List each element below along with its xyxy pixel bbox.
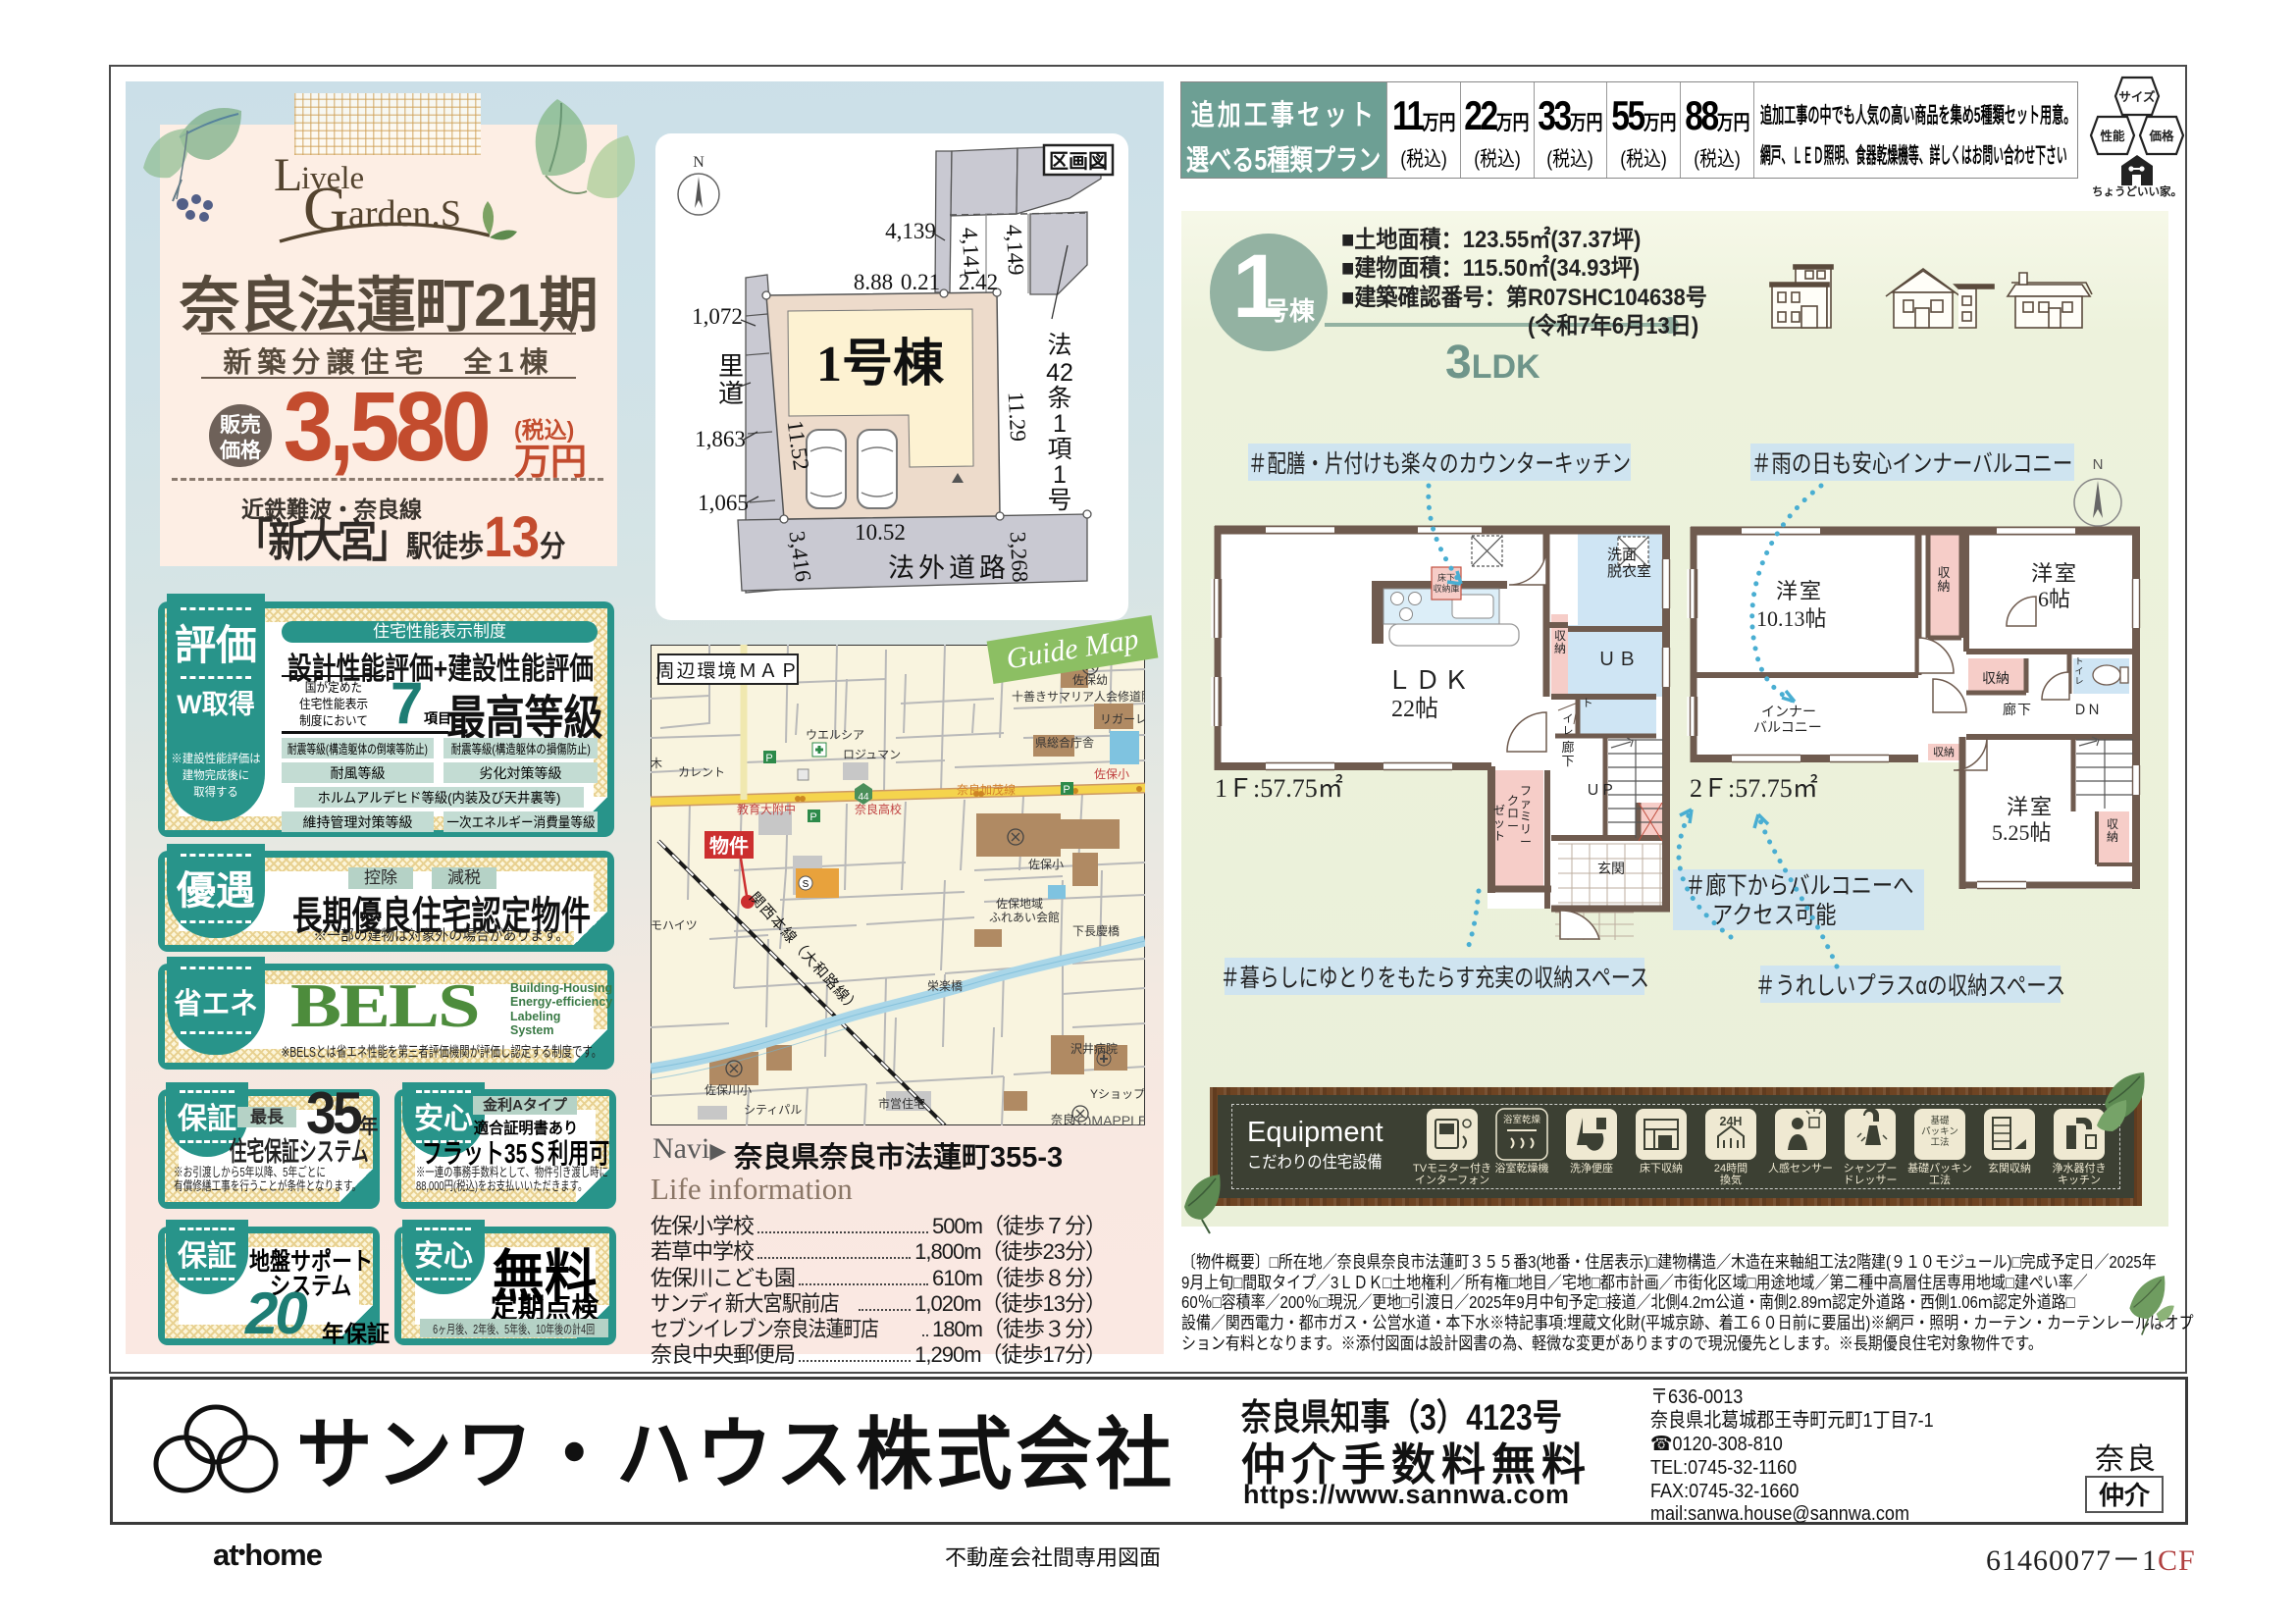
- svg-text:佐保小: 佐保小: [1094, 767, 1129, 781]
- svg-text:区画図: 区画図: [1049, 151, 1108, 173]
- svg-text:里: 里: [718, 351, 744, 381]
- svg-text:P: P: [765, 753, 772, 764]
- svg-text:項: 項: [1047, 436, 1071, 463]
- svg-text:1: 1: [1053, 410, 1067, 438]
- svg-text:条: 条: [1047, 385, 1071, 412]
- svg-text:性能: 性能: [2099, 129, 2125, 143]
- svg-text:インターフォン: インターフォン: [1415, 1174, 1489, 1186]
- svg-text:8.88: 8.88: [854, 270, 893, 294]
- svg-text:44: 44: [858, 792, 869, 803]
- svg-text:パッキン: パッキン: [1921, 1126, 1958, 1137]
- svg-text:法外道路: 法外道路: [888, 553, 1010, 583]
- svg-text:浴室乾燥: 浴室乾燥: [1503, 1114, 1541, 1125]
- svg-text:奈良加茂線: 奈良加茂線: [957, 782, 1016, 797]
- svg-text:浄水器付き: 浄水器付き: [2053, 1161, 2107, 1175]
- svg-text:1,072: 1,072: [692, 304, 743, 329]
- svg-text:浴室乾燥機: 浴室乾燥機: [1495, 1161, 1549, 1175]
- svg-text:下長慶橋: 下長慶橋: [1072, 924, 1120, 938]
- svg-text:工法: 工法: [1930, 1136, 1949, 1148]
- svg-text:Yショップ: Yショップ: [1090, 1087, 1145, 1101]
- svg-text:N: N: [693, 154, 704, 171]
- svg-text:教育大附中: 教育大附中: [737, 802, 796, 816]
- svg-text:シャンプー: シャンプー: [1844, 1162, 1898, 1175]
- svg-text:法: 法: [1047, 332, 1071, 359]
- svg-text:サイズ: サイズ: [2118, 89, 2156, 104]
- svg-text:4,139: 4,139: [885, 219, 936, 243]
- svg-text:1,863: 1,863: [695, 427, 746, 451]
- svg-text:洗浄便座: 洗浄便座: [1570, 1161, 1613, 1175]
- svg-text:ドレッサー: ドレッサー: [1844, 1174, 1898, 1186]
- svg-text:ロジュマン: ロジュマン: [843, 748, 901, 761]
- svg-text:10.52: 10.52: [855, 520, 906, 545]
- svg-text:人感センサー: 人感センサー: [1768, 1162, 1833, 1175]
- svg-text:カレント: カレント: [678, 765, 725, 779]
- svg-text:価格: 価格: [2148, 129, 2174, 143]
- svg-text:工法: 工法: [1929, 1173, 1951, 1186]
- svg-text:4,149: 4,149: [1002, 224, 1029, 276]
- svg-text:1,065: 1,065: [698, 491, 749, 515]
- svg-text:沢井病院: 沢井病院: [1070, 1041, 1118, 1056]
- svg-text:佐保地域: 佐保地域: [996, 897, 1043, 911]
- svg-text:栄楽橋: 栄楽橋: [927, 979, 963, 993]
- svg-text:玄関収納: 玄関収納: [1988, 1161, 2031, 1175]
- svg-text:周辺環境ＭＡＰ: 周辺環境ＭＡＰ: [655, 660, 800, 682]
- svg-text:キッチン: キッチン: [2058, 1174, 2101, 1186]
- svg-text:L: L: [274, 149, 302, 201]
- svg-text:佐保小: 佐保小: [1028, 858, 1064, 871]
- svg-text:(C)MAPPLE: (C)MAPPLE: [1072, 1113, 1145, 1125]
- svg-text:佐保川小: 佐保川小: [704, 1083, 752, 1097]
- svg-text:42: 42: [1046, 359, 1073, 387]
- svg-text:物件: 物件: [709, 834, 749, 858]
- svg-text:木: 木: [651, 757, 662, 770]
- svg-text:1: 1: [1053, 461, 1067, 489]
- svg-text:奈良: 奈良: [1051, 1112, 1074, 1125]
- svg-text:P: P: [809, 811, 816, 823]
- svg-text:ちょうどいい家。: ちょうどいい家。: [2092, 184, 2182, 197]
- svg-text:ウエルシア: ウエルシア: [806, 728, 864, 742]
- svg-text:床下収納: 床下収納: [1640, 1161, 1683, 1175]
- svg-text:道: 道: [718, 379, 744, 408]
- svg-text:佐保幼: 佐保幼: [1072, 673, 1108, 687]
- svg-text:24時間: 24時間: [1714, 1162, 1748, 1175]
- svg-text:1号棟: 1号棟: [816, 336, 945, 392]
- svg-text:市営住宅: 市営住宅: [878, 1096, 925, 1111]
- svg-text:県総合庁舎: 県総合庁舎: [1035, 735, 1094, 750]
- svg-text:TVモニター付き: TVモニター付き: [1413, 1162, 1491, 1175]
- svg-text:換気: 換気: [1720, 1173, 1742, 1186]
- svg-text:基礎: 基礎: [1930, 1115, 1950, 1126]
- svg-text:P: P: [1063, 784, 1070, 796]
- svg-text:モハイツ: モハイツ: [651, 918, 698, 932]
- svg-text:号: 号: [1047, 487, 1071, 514]
- svg-text:リガーレ: リガーレ: [1100, 712, 1145, 726]
- svg-text:ふれあい会館: ふれあい会館: [989, 910, 1060, 924]
- svg-text:シティパル: シティパル: [744, 1103, 802, 1117]
- svg-text:0.21: 0.21: [901, 270, 940, 294]
- svg-text:S: S: [803, 879, 809, 890]
- svg-text:十善きサマリア人会修道院: 十善きサマリア人会修道院: [1012, 689, 1145, 704]
- svg-text:基礎パッキン: 基礎パッキン: [1907, 1162, 1972, 1175]
- svg-text:4,141: 4,141: [958, 227, 985, 279]
- svg-text:奈良高校: 奈良高校: [855, 802, 902, 816]
- svg-text:11.29: 11.29: [1004, 392, 1031, 443]
